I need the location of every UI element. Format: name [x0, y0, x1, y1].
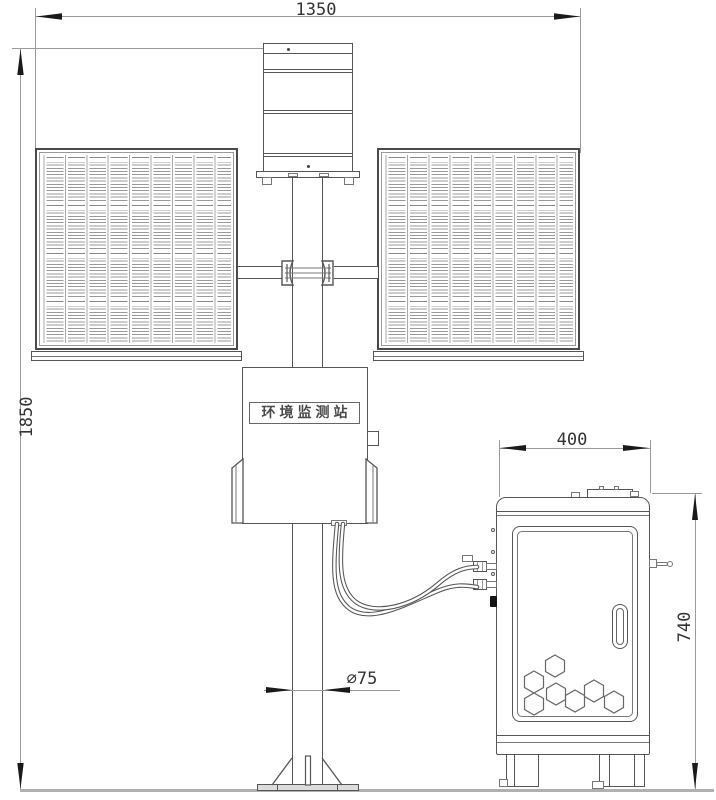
cable-gland-collar — [486, 563, 497, 570]
engineering-drawing-canvas: 1350 1850 环境监测站 — [0, 0, 716, 800]
sensor-band — [264, 110, 352, 114]
cross-arm-left — [238, 266, 282, 279]
hinge-pin — [491, 528, 495, 532]
sensor-dot — [287, 48, 290, 51]
dim-label-pole-diameter: ∅75 — [322, 669, 402, 689]
antenna-tip — [667, 561, 673, 567]
dim-label-overall-height: 1850 — [17, 382, 37, 452]
dim-ext-line — [580, 8, 581, 153]
base-plate — [257, 784, 359, 791]
cabinet-base-line — [497, 742, 649, 743]
solar-panel-cells — [42, 155, 231, 343]
cabinet-leg-left — [506, 754, 539, 787]
cabinet-base-line — [497, 735, 649, 736]
sensor-band — [264, 153, 352, 157]
cabinet-foot — [499, 779, 508, 787]
signal-cable-core — [334, 524, 477, 614]
dim-ext-line — [650, 440, 651, 493]
rail-line — [32, 356, 241, 357]
control-box-side-tab — [367, 431, 379, 446]
dim-line-pole-diameter — [264, 690, 400, 691]
cross-arm-right — [334, 266, 378, 279]
control-box-connector — [236, 481, 242, 494]
cabinet-top-tick — [614, 486, 619, 490]
leg-line — [634, 755, 635, 786]
cable-bushing — [331, 520, 347, 526]
dim-label-cabinet-width: 400 — [522, 430, 622, 450]
signal-cable — [334, 524, 477, 614]
solar-panel-left-rail — [31, 351, 242, 361]
base-plate-tick — [337, 785, 338, 790]
hinge-pin — [491, 550, 495, 554]
cabinet-leg-right — [599, 754, 645, 787]
hinge-pin — [491, 572, 495, 576]
dim-label-overall-width: 1350 — [266, 0, 366, 20]
sensor-band — [264, 69, 352, 73]
solar-panel-left — [35, 148, 238, 350]
sensor-cap-line — [264, 53, 352, 54]
base-plate-tick — [277, 785, 278, 790]
solar-panel-cells — [384, 155, 573, 343]
dim-label-cabinet-height: 740 — [675, 592, 695, 662]
cabinet-foot — [592, 781, 604, 789]
rail-line — [374, 356, 583, 357]
dim-line-cabinet-height — [695, 493, 696, 789]
cabinet-handle — [612, 604, 628, 649]
base-gusset-left — [272, 758, 292, 785]
dim-ext-line — [12, 48, 263, 49]
cabinet-handle-inner — [616, 608, 624, 645]
weather-sensor-body — [263, 43, 353, 172]
station-sign-plate: 环境监测站 — [249, 402, 360, 424]
sensor-mount-tab — [288, 173, 298, 177]
leg-line — [514, 755, 515, 786]
cabinet-cap-line — [497, 515, 649, 516]
sensor-dot — [307, 165, 310, 168]
sensor-foot — [344, 177, 354, 185]
cable-gland-upper — [473, 561, 487, 572]
base-gusset-right — [322, 758, 342, 785]
arm-clamp-right — [322, 261, 333, 285]
solar-panel-right — [377, 148, 580, 350]
signal-cable-core — [341, 524, 477, 608]
cabinet-cap-line — [497, 511, 649, 512]
signal-cable — [341, 524, 477, 608]
control-box — [242, 367, 368, 524]
cable-gland-collar — [486, 581, 497, 588]
cable-gland-plug — [462, 555, 473, 562]
sensor-mount-tab — [319, 173, 329, 177]
sensor-foot — [262, 177, 272, 185]
side-connector-black — [490, 596, 497, 607]
dim-ext-line — [35, 8, 36, 148]
solar-panel-right-rail — [373, 351, 584, 361]
ground-line — [20, 789, 714, 792]
leg-line — [609, 755, 610, 786]
cabinet-top-tick — [599, 486, 604, 490]
cable-gland-lower — [473, 579, 487, 590]
